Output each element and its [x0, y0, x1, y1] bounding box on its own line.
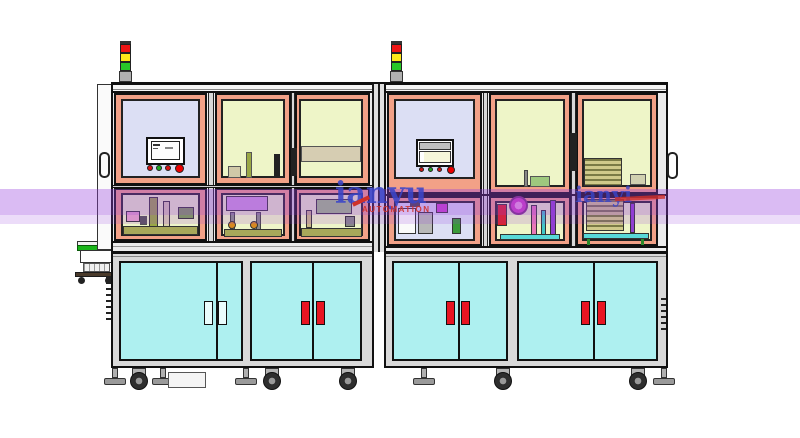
machinery-base: [301, 228, 362, 237]
machinery-post: [524, 170, 528, 187]
door-handle: [218, 301, 227, 325]
watermark-brand-text-right: ianyi: [575, 184, 632, 205]
door-handle: [597, 301, 606, 325]
leveling-foot: [661, 368, 667, 378]
machinery-post: [306, 210, 312, 228]
door-split: [458, 263, 460, 359]
cabinet-door-pair-2: [250, 261, 362, 361]
machinery-part: [178, 207, 194, 219]
signal-lamp-green: [391, 62, 402, 71]
panel-button-red: [165, 165, 171, 171]
base-rail-line: [386, 256, 666, 257]
side-vent-right: [661, 298, 666, 334]
signal-tower-base: [119, 71, 132, 82]
work-table: [500, 234, 560, 240]
hmi-screen-text: [153, 148, 158, 149]
work-table: [583, 233, 649, 239]
door-hinge: [570, 133, 577, 171]
machinery-part: [345, 216, 355, 227]
door-hinge: [291, 148, 297, 176]
machinery-part: [530, 176, 550, 187]
leveling-foot: [421, 368, 427, 378]
leveling-foot-pad: [104, 378, 126, 385]
machinery-part: [497, 204, 507, 226]
viewing-window: [299, 99, 363, 178]
hmi-screen-strip: [420, 152, 424, 162]
viewing-window: [495, 99, 565, 187]
machinery-roller: [228, 221, 236, 229]
door-handle: [301, 301, 310, 325]
caster-wheel: [629, 372, 647, 390]
side-vent-left: [106, 276, 111, 324]
base-rail-line: [113, 256, 372, 257]
leveling-foot: [112, 368, 118, 378]
door-handle: [446, 301, 455, 325]
leveling-foot-pad: [235, 378, 257, 385]
hmi-screen-text: [153, 144, 160, 146]
panel-button-green: [156, 165, 162, 171]
signal-tower-base: [390, 71, 403, 82]
door-split: [312, 263, 314, 359]
emergency-stop-button: [447, 166, 455, 174]
door-hinge: [274, 154, 280, 178]
conveyor-wheel-left: [78, 277, 85, 284]
top-rail-left: [113, 84, 372, 93]
table-leg: [587, 239, 590, 245]
machinery-part: [246, 152, 252, 178]
panel-button-red: [147, 165, 153, 171]
machinery-part: [301, 146, 361, 162]
cabinet-door-pair-3: [392, 261, 508, 361]
machinery-part: [436, 203, 448, 213]
machinery-cylinder: [163, 201, 170, 227]
door-handle: [581, 301, 590, 325]
emergency-stop-button: [175, 164, 184, 173]
table-leg: [641, 239, 644, 245]
signal-lamp-red: [120, 44, 131, 53]
door-handle: [316, 301, 325, 325]
caster-wheel: [494, 372, 512, 390]
signal-lamp-green: [120, 62, 131, 71]
signal-lamp-red: [391, 44, 402, 53]
conveyor-body: [80, 250, 113, 263]
caster-wheel: [130, 372, 148, 390]
panel-button-red: [437, 167, 442, 172]
floor-block: [168, 372, 206, 388]
watermark-subtitle: AUTOMATION: [362, 205, 430, 214]
machinery-part: [418, 212, 433, 234]
panel-button-green: [428, 167, 433, 172]
machinery-roller: [250, 221, 258, 229]
machinery-part: [228, 166, 241, 178]
machinery-post: [550, 200, 556, 238]
conveyor-skirt: [83, 263, 110, 272]
signal-lamp-yellow: [120, 53, 131, 62]
machinery-wheel: [509, 196, 528, 215]
caster-wheel: [263, 372, 281, 390]
signal-lamp-yellow: [391, 53, 402, 62]
machinery-gantry: [226, 196, 268, 211]
hmi-screen-dash: [165, 147, 173, 149]
machinery-base: [123, 226, 198, 235]
hmi-top-bar: [419, 142, 451, 150]
machine-render-scene: ianyu AUTOMATION ianyi: [0, 0, 800, 438]
door-handle: [461, 301, 470, 325]
machinery-base: [224, 229, 282, 237]
bottom-rail-left: [113, 241, 372, 252]
machinery-part: [452, 218, 461, 234]
leveling-foot: [160, 368, 166, 378]
machinery-post: [630, 203, 635, 233]
door-split: [593, 263, 595, 359]
caster-wheel: [339, 372, 357, 390]
leveling-foot-pad: [653, 378, 675, 385]
cabinet-door-pair-1: [119, 261, 243, 361]
right-side-handle: [667, 152, 678, 179]
machinery-tower: [149, 197, 158, 227]
top-rail-right: [386, 84, 666, 93]
panel-button-red: [419, 167, 424, 172]
frame-column: [483, 93, 488, 246]
door-handle: [204, 301, 213, 325]
machinery-part: [140, 216, 147, 225]
leveling-foot-pad: [413, 378, 435, 385]
frame-column: [208, 93, 214, 241]
machinery-part: [630, 174, 646, 185]
cabinet-door-pair-4: [517, 261, 658, 361]
leveling-foot: [243, 368, 249, 378]
left-side-handle: [99, 152, 110, 178]
machinery-part: [126, 211, 140, 222]
